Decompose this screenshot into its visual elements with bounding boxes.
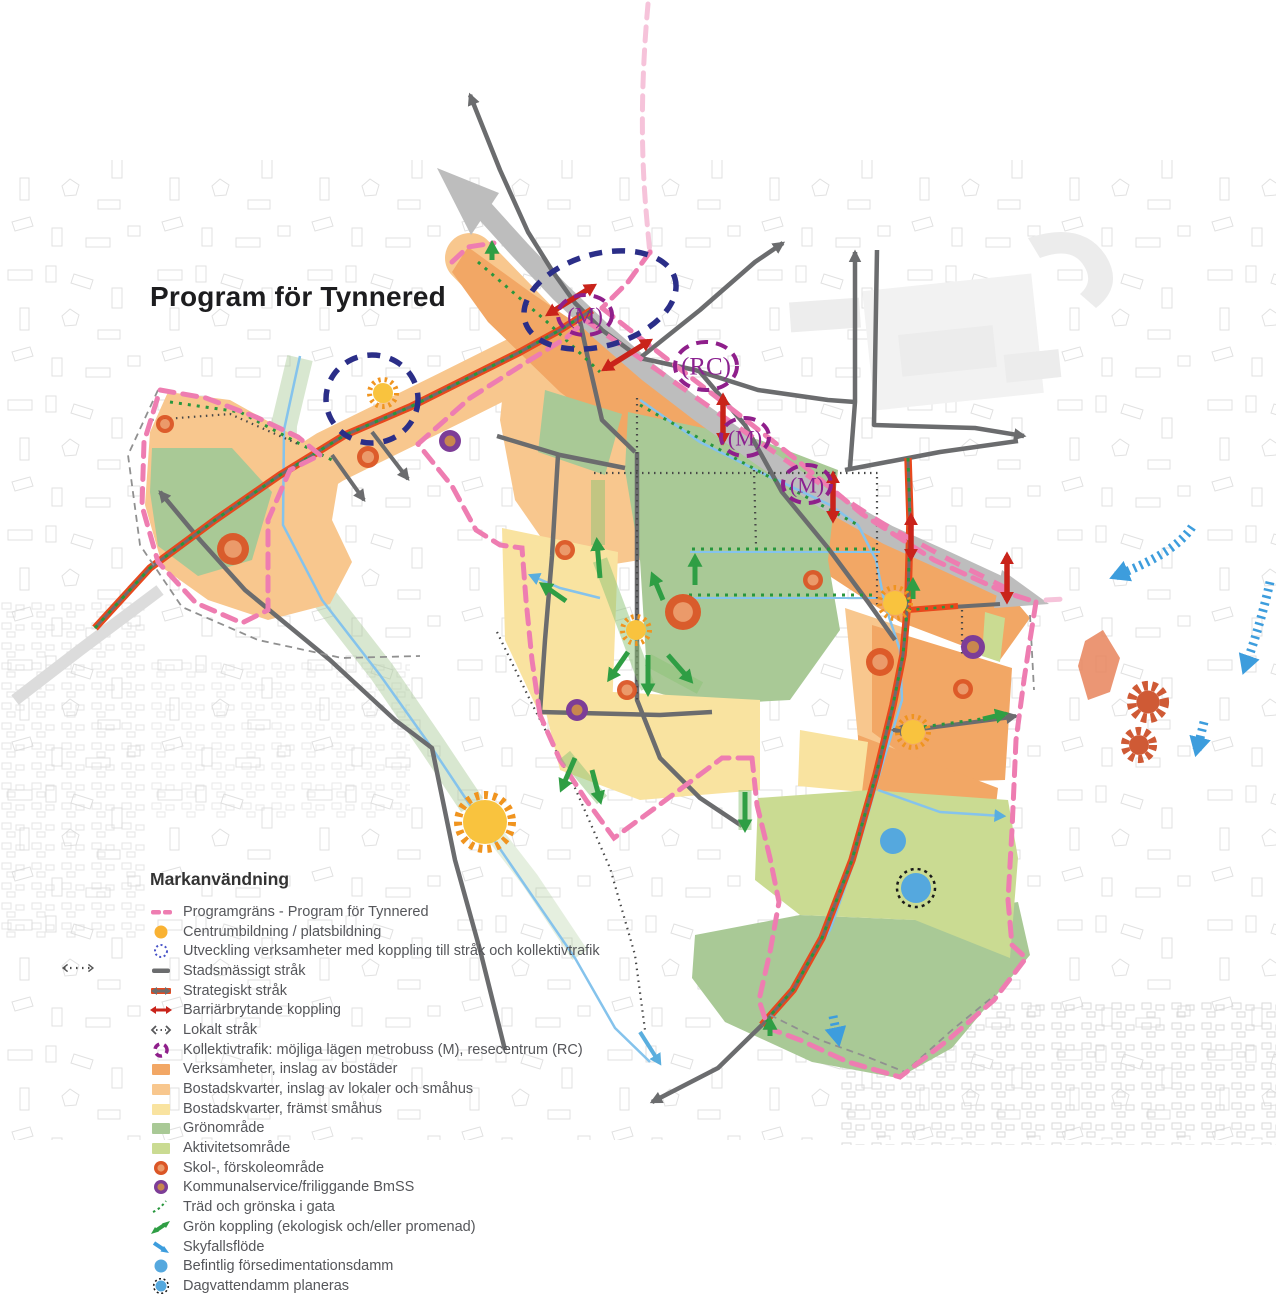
legend-item-label: Dagvattendamm planeras: [183, 1278, 349, 1294]
legend-item-label: Grönområde: [183, 1120, 264, 1136]
school-area-symbol: [866, 648, 894, 676]
legend-item-label: Skol-, förskoleområde: [183, 1160, 324, 1176]
legend-item-label: Skyfallsflöde: [183, 1239, 264, 1255]
legend-item-label: Barriärbrytande koppling: [183, 1002, 341, 1018]
legend-item-label: Aktivitetsområde: [183, 1140, 290, 1156]
school-area-symbol: [156, 415, 174, 433]
legend-item: Kollektivtrafik: möjliga lägen metrobuss…: [148, 1040, 600, 1060]
transit-marker-label: (M): [728, 426, 762, 451]
activity-area-icon: [148, 1140, 174, 1156]
legend: Markanvändning Programgräns - Program fö…: [148, 869, 600, 1296]
school-area-symbol: [665, 594, 701, 630]
legend-item: Barriärbrytande koppling: [148, 1000, 600, 1020]
municipal-service-symbol: [439, 430, 461, 452]
legend-item: Dagvattendamm planeras: [148, 1276, 600, 1296]
centre-formation-icon: [148, 924, 174, 940]
legend-item: Utveckling verksamheter med koppling til…: [148, 941, 600, 961]
legend-item: Bostadskvarter, främst småhus: [148, 1099, 600, 1119]
legend-item-label: Verksamheter, inslag av bostäder: [183, 1061, 397, 1077]
legend-heading: Markanvändning: [150, 869, 600, 890]
legend-item-label: Centrumbildning / platsbildning: [183, 924, 381, 940]
legend-item-label: Lokalt stråk: [183, 1022, 257, 1038]
page-title: Program för Tynnered: [150, 281, 446, 313]
legend-item: Kommunalservice/friliggande BmSS: [148, 1178, 600, 1198]
legend-item: Verksamheter, inslag av bostäder: [148, 1060, 600, 1080]
legend-item: Skol-, förskoleområde: [148, 1158, 600, 1178]
school-area-icon: [148, 1160, 174, 1176]
barrier-breaking-icon: [148, 1002, 174, 1018]
legend-item: Träd och grönska i gata: [148, 1197, 600, 1217]
cloudburst-flow-icon: [148, 1239, 174, 1255]
school-area-symbol: [357, 446, 379, 468]
legend-item-label: Kommunalservice/friliggande BmSS: [183, 1179, 414, 1195]
legend-item: Grön koppling (ekologisk och/eller prome…: [148, 1217, 600, 1237]
legend-rows: Programgräns - Program för TynneredCentr…: [148, 902, 600, 1296]
legend-item-label: Programgräns - Program för Tynnered: [183, 904, 429, 920]
school-area-symbol: [803, 570, 823, 590]
school-area-symbol: [953, 679, 973, 699]
legend-item-label: Befintlig försedimentationsdamm: [183, 1258, 393, 1274]
strategic-route-icon: [148, 983, 174, 999]
business-area-icon: [148, 1061, 174, 1077]
transit-marker-label: (M): [790, 473, 824, 498]
school-area-symbol: [617, 680, 637, 700]
street-greenery-icon: [148, 1199, 174, 1215]
school-area-symbol: [555, 540, 575, 560]
planning-map-poster: (M)(RC)(M)(M) Program för Tynnered Marka…: [0, 0, 1276, 1308]
municipal-service-symbol: [961, 635, 985, 659]
legend-item-label: Grön koppling (ekologisk och/eller prome…: [183, 1219, 476, 1235]
local-route-icon: [148, 1022, 174, 1038]
legend-item: Centrumbildning / platsbildning: [148, 922, 600, 942]
municipal-service-symbol: [566, 699, 588, 721]
green-link-arrow: [597, 542, 600, 578]
legend-item: Aktivitetsområde: [148, 1138, 600, 1158]
legend-item: Strategiskt stråk: [148, 981, 600, 1001]
legend-item: Lokalt stråk: [148, 1020, 600, 1040]
legend-item: Programgräns - Program för Tynnered: [148, 902, 600, 922]
small-house-area-icon: [148, 1101, 174, 1117]
school-area-symbol: [217, 533, 249, 565]
public-transport-icon: [148, 1042, 174, 1058]
legend-item-label: Kollektivtrafik: möjliga lägen metrobuss…: [183, 1042, 583, 1058]
green-area-icon: [148, 1120, 174, 1136]
legend-item: Grönområde: [148, 1119, 600, 1139]
legend-item: Befintlig försedimentationsdamm: [148, 1256, 600, 1276]
legend-item-label: Bostadskvarter, inslag av lokaler och sm…: [183, 1081, 473, 1097]
mixed-housing-area-icon: [148, 1081, 174, 1097]
legend-item-label: Stadsmässigt stråk: [183, 963, 306, 979]
stormwater-pond-icon: [148, 1278, 174, 1294]
legend-item: Bostadskvarter, inslag av lokaler och sm…: [148, 1079, 600, 1099]
legend-item-label: Träd och grönska i gata: [183, 1199, 335, 1215]
transit-marker-label: (M): [567, 304, 603, 329]
municipal-service-icon: [148, 1179, 174, 1195]
legend-item: Stadsmässigt stråk: [148, 961, 600, 981]
transit-marker-label: (RC): [681, 354, 731, 381]
legend-item-label: Strategiskt stråk: [183, 983, 287, 999]
legend-item: Skyfallsflöde: [148, 1237, 600, 1257]
legend-item-label: Bostadskvarter, främst småhus: [183, 1101, 382, 1117]
sedimentation-pond-icon: [148, 1258, 174, 1274]
program-boundary-icon: [148, 904, 174, 920]
green-link-icon: [148, 1219, 174, 1235]
legend-item-label: Utveckling verksamheter med koppling til…: [183, 943, 600, 959]
development-dotted-circle-icon: [148, 943, 174, 959]
urban-route-icon: [148, 963, 174, 979]
sedimentation-pond-symbol: [880, 828, 906, 854]
